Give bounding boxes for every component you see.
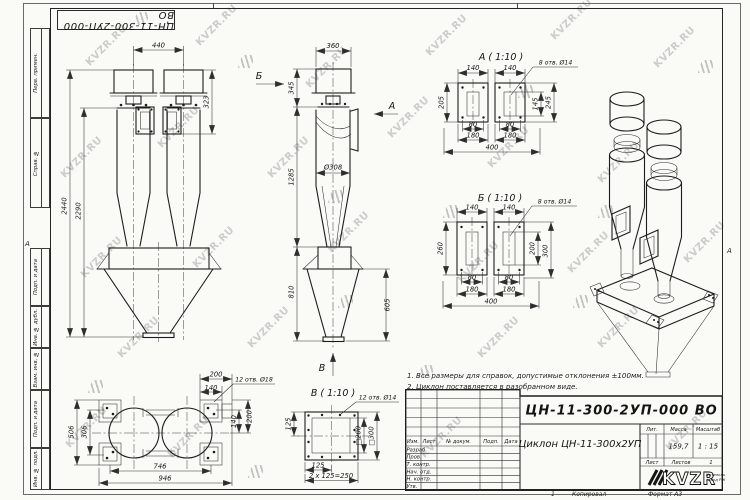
dim-140: 140 xyxy=(503,204,516,212)
detail-view-b: Б ( 1:10 ) 140 140 8 отв. Ø14 260 200 xyxy=(437,193,578,309)
detail-view-v: В ( 1:10 ) 12 отв. Ø14 125 □200 □300 xyxy=(285,388,400,483)
dim-345: 345 xyxy=(288,82,296,95)
dim-306: 306 xyxy=(81,425,89,439)
dim-125: 125 xyxy=(285,418,293,431)
scale-value: 1 : 15 xyxy=(698,443,719,451)
dim-200: 200 xyxy=(246,410,254,423)
dim-2290: 2290 xyxy=(75,202,83,219)
role-t-kontr: Т. контр. xyxy=(407,462,431,468)
dim-300: 300 xyxy=(542,245,550,258)
dim-80: 80 xyxy=(469,121,478,129)
plan-view: 200 140 12 отв. Ø18 140 200 506 306 746 … xyxy=(68,371,276,487)
dim-1285: 1285 xyxy=(288,168,296,185)
dim-200: 200 xyxy=(529,242,537,255)
dim-946: 946 xyxy=(159,475,173,483)
front-view: 440 323 2440 2290 xyxy=(61,42,222,343)
view-arrow-a-label: А xyxy=(388,101,396,112)
dim-180: 180 xyxy=(467,132,480,140)
col-list: Лист xyxy=(422,439,437,445)
dim-506: 506 xyxy=(68,425,76,439)
dim-746: 746 xyxy=(154,463,168,471)
col-data: Дата xyxy=(503,439,517,445)
dim-140: 140 xyxy=(466,204,479,212)
role-prov: Пров. xyxy=(407,455,422,461)
mass-label: Масса xyxy=(670,427,686,433)
format-label: Формат А3 xyxy=(648,491,682,498)
dim-sq200: □200 xyxy=(355,426,363,445)
dim-308: Ø308 xyxy=(323,164,343,172)
dim-80: 80 xyxy=(505,274,514,282)
col-podp: Подп. xyxy=(483,439,498,445)
dim-80: 80 xyxy=(468,274,477,282)
sheet-label: Лист xyxy=(645,460,660,466)
dim-440: 440 xyxy=(152,42,165,50)
dim-2x125: 2 х 125=250 xyxy=(309,472,353,480)
side-view: 360 345 1285 810 605 Ø308 Б А В xyxy=(256,42,398,376)
role-nach-otd: Нач. отд. xyxy=(407,469,432,475)
dim-810: 810 xyxy=(288,286,296,299)
isometric-view xyxy=(590,92,718,377)
dim-200: 200 xyxy=(210,371,223,379)
detail-a-title: А ( 1:10 ) xyxy=(478,52,523,63)
view-arrow-b-label: Б xyxy=(256,71,263,82)
dim-140: 140 xyxy=(230,415,238,428)
col-izm: Изм. xyxy=(407,439,419,445)
role-n-kontr: Н. контр. xyxy=(407,477,432,483)
dim-125: 125 xyxy=(312,462,325,470)
dim-140: 140 xyxy=(467,64,480,72)
dim-245: 245 xyxy=(545,96,553,109)
dim-205: 205 xyxy=(438,96,446,109)
dim-180: 180 xyxy=(504,132,517,140)
mass-value: 159,7 xyxy=(668,443,689,451)
drawing-sheet: KVZR.RU KVZR.RU KVZR.RU KVZR.RU KVZR.RU … xyxy=(0,0,750,500)
dim-140: 140 xyxy=(205,384,218,392)
dim-400: 400 xyxy=(485,298,498,306)
dim-360: 360 xyxy=(327,42,340,50)
lit-label: Лит. xyxy=(645,427,658,433)
dim-140: 140 xyxy=(504,64,517,72)
doc-number: ЦН-11-300-2УП-000 ВО xyxy=(525,404,717,419)
copy-label: Копировал xyxy=(572,491,606,498)
view-arrow-v-label: В xyxy=(319,363,326,374)
hole-callout: 12 отв. Ø18 xyxy=(235,376,273,384)
dim-2440: 2440 xyxy=(61,197,69,214)
page-num: 1 xyxy=(551,491,555,498)
sheets-value: 1 xyxy=(709,460,712,466)
product-name: Циклон ЦН-11-300х2УП xyxy=(519,439,642,450)
hole-callout: 8 отв. Ø14 xyxy=(539,59,573,67)
title-block: Изм. Лист № докум. Подп. Дата Разраб. Пр… xyxy=(405,389,725,492)
company-sub-2: завод РЭП xyxy=(706,477,725,482)
role-razrab: Разраб. xyxy=(407,447,427,453)
dim-323: 323 xyxy=(203,96,211,109)
sheets-label: Листов xyxy=(670,460,690,466)
detail-v-title: В ( 1:10 ) xyxy=(311,388,355,399)
detail-view-a: А ( 1:10 ) 140 140 8 отв. Ø14 205 145 xyxy=(438,52,579,155)
dim-180: 180 xyxy=(466,286,479,294)
dim-400: 400 xyxy=(486,144,499,152)
detail-b-title: Б ( 1:10 ) xyxy=(478,193,522,204)
scale-label: Масштаб xyxy=(696,427,720,433)
hole-callout: 8 отв. Ø14 xyxy=(538,198,572,206)
col-ndokum: № докум. xyxy=(445,439,471,445)
dim-145: 145 xyxy=(532,98,540,111)
note-line-1: 1. Все размеры для справок, допустимые о… xyxy=(407,371,644,382)
dim-180: 180 xyxy=(503,286,516,294)
hole-callout: 12 отв. Ø14 xyxy=(359,394,397,402)
role-utv: Утв. xyxy=(407,484,418,490)
dim-80: 80 xyxy=(506,121,515,129)
dim-605: 605 xyxy=(384,299,392,312)
dim-sq300: □300 xyxy=(368,426,376,445)
dim-260: 260 xyxy=(437,242,445,255)
